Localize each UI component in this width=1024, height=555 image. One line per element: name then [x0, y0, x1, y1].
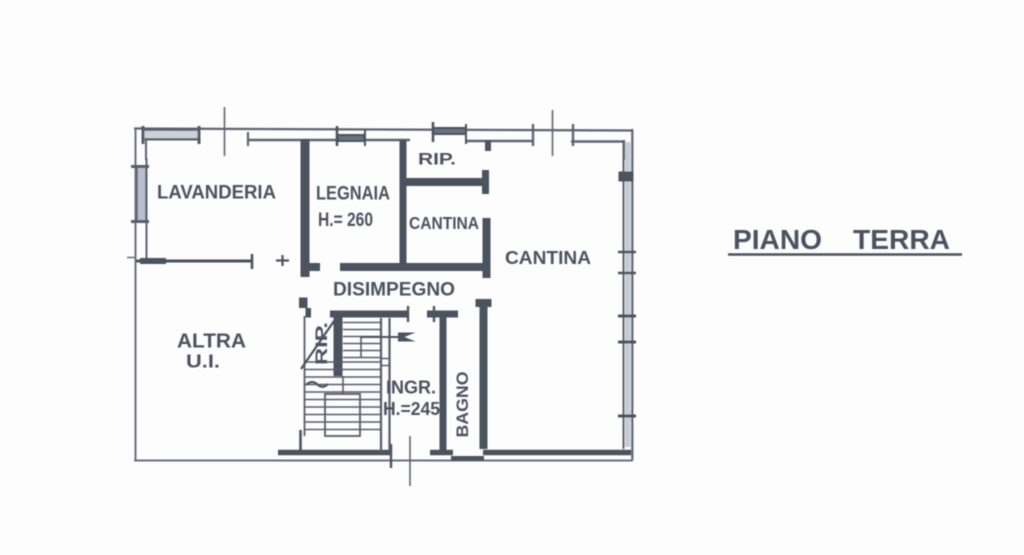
svg-text:BAGNO: BAGNO	[453, 372, 472, 438]
svg-text:INGR.: INGR.	[386, 378, 436, 398]
svg-text:H.= 260: H.= 260	[318, 209, 373, 231]
svg-text:H.=245: H.=245	[383, 398, 440, 419]
svg-text:TERRA: TERRA	[853, 224, 950, 255]
svg-text:PIANO: PIANO	[733, 224, 822, 255]
svg-text:LAVANDERIA: LAVANDERIA	[157, 182, 276, 204]
svg-text:ALTRA: ALTRA	[177, 331, 246, 353]
svg-text:RIP.: RIP.	[418, 150, 456, 169]
svg-text:U.I.: U.I.	[186, 351, 220, 372]
svg-text:RIP.: RIP.	[313, 322, 331, 365]
svg-text:CANTINA: CANTINA	[505, 248, 591, 268]
svg-text:CANTINA: CANTINA	[409, 213, 479, 233]
svg-text:DISIMPEGNO: DISIMPEGNO	[333, 279, 455, 301]
svg-text:LEGNAIA: LEGNAIA	[316, 183, 390, 205]
